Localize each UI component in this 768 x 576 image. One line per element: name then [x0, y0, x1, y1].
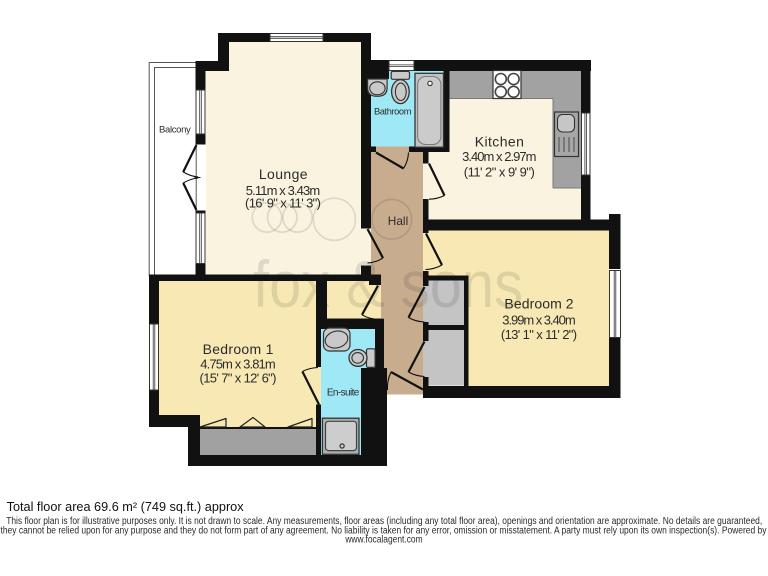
- svg-text:(15' 7" x 12' 6"): (15' 7" x 12' 6"): [200, 370, 277, 385]
- svg-text:Bathroom: Bathroom: [374, 106, 412, 116]
- svg-text:En-suite: En-suite: [327, 387, 360, 398]
- svg-text:(16' 9" x 11' 3"): (16' 9" x 11' 3"): [245, 195, 321, 210]
- svg-text:Bedroom 1: Bedroom 1: [203, 341, 274, 357]
- svg-text:Total floor area 69.6 m² (749: Total floor area 69.6 m² (749 sq.ft.) ap…: [7, 499, 245, 514]
- svg-text:Bedroom 2: Bedroom 2: [504, 296, 573, 312]
- svg-text:4.75m x 3.81m: 4.75m x 3.81m: [200, 356, 276, 371]
- svg-text:Balcony: Balcony: [159, 125, 191, 136]
- svg-text:fox & sons: fox & sons: [253, 247, 523, 321]
- svg-text:Lounge: Lounge: [259, 166, 308, 182]
- svg-text:3.40m x 2.97m: 3.40m x 2.97m: [462, 149, 536, 164]
- svg-text:3.99m x 3.40m: 3.99m x 3.40m: [502, 313, 575, 328]
- svg-text:(13' 1" x 11' 2"): (13' 1" x 11' 2"): [501, 327, 577, 342]
- svg-text:Kitchen: Kitchen: [475, 133, 524, 149]
- svg-text:(11' 2" x 9' 9"): (11' 2" x 9' 9"): [464, 165, 535, 180]
- svg-text:www.focalagent.com: www.focalagent.com: [345, 535, 423, 546]
- svg-text:Hall: Hall: [388, 214, 408, 228]
